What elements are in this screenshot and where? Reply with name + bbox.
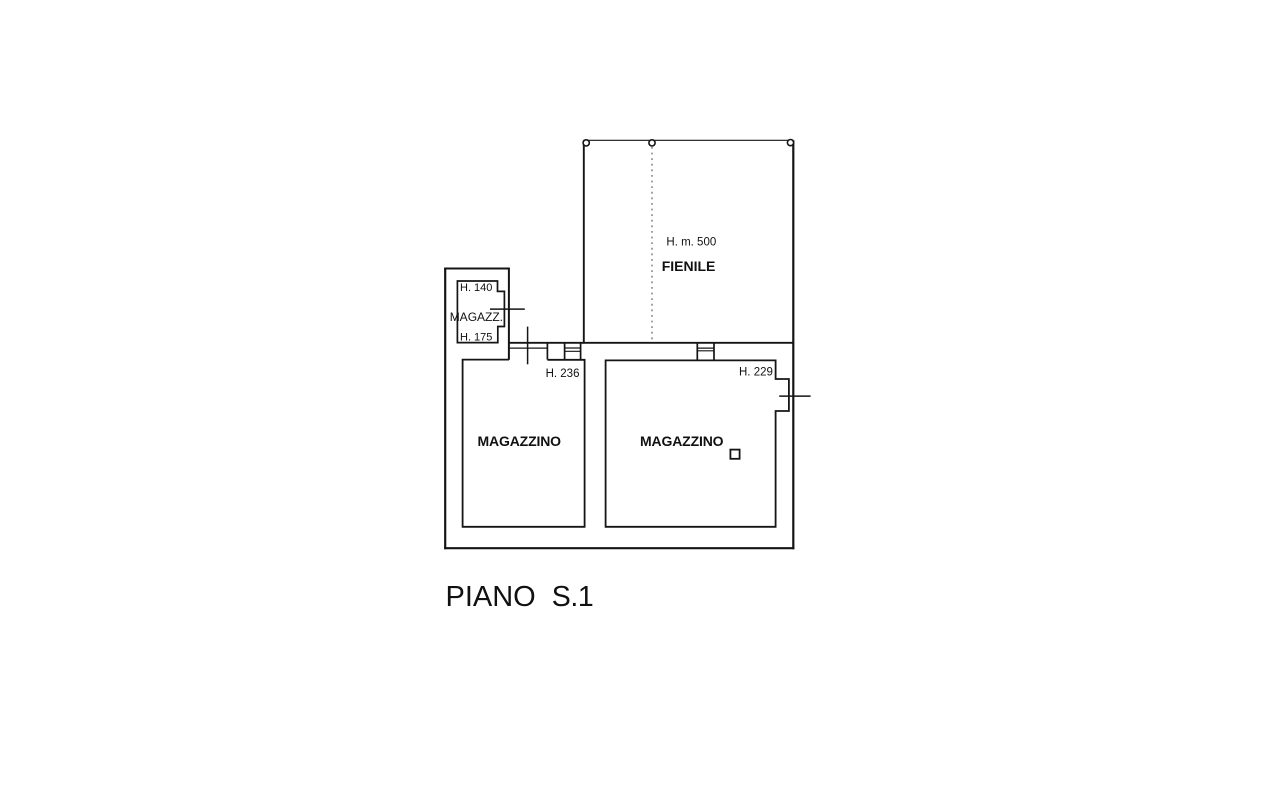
svg-text:H. 140: H. 140 <box>460 282 492 294</box>
svg-text:H. 229: H. 229 <box>739 367 773 379</box>
svg-text:S.1: S.1 <box>552 581 594 613</box>
svg-text:PIANO: PIANO <box>446 581 536 613</box>
svg-text:MAGAZZINO: MAGAZZINO <box>640 433 724 449</box>
svg-text:H. 236: H. 236 <box>546 368 580 380</box>
svg-text:H. m. 500: H. m. 500 <box>666 237 716 249</box>
svg-text:H. 175: H. 175 <box>460 332 492 344</box>
svg-text:MAGAZZ.: MAGAZZ. <box>450 310 503 324</box>
svg-text:FIENILE: FIENILE <box>662 258 716 274</box>
svg-text:MAGAZZINO: MAGAZZINO <box>478 433 562 449</box>
